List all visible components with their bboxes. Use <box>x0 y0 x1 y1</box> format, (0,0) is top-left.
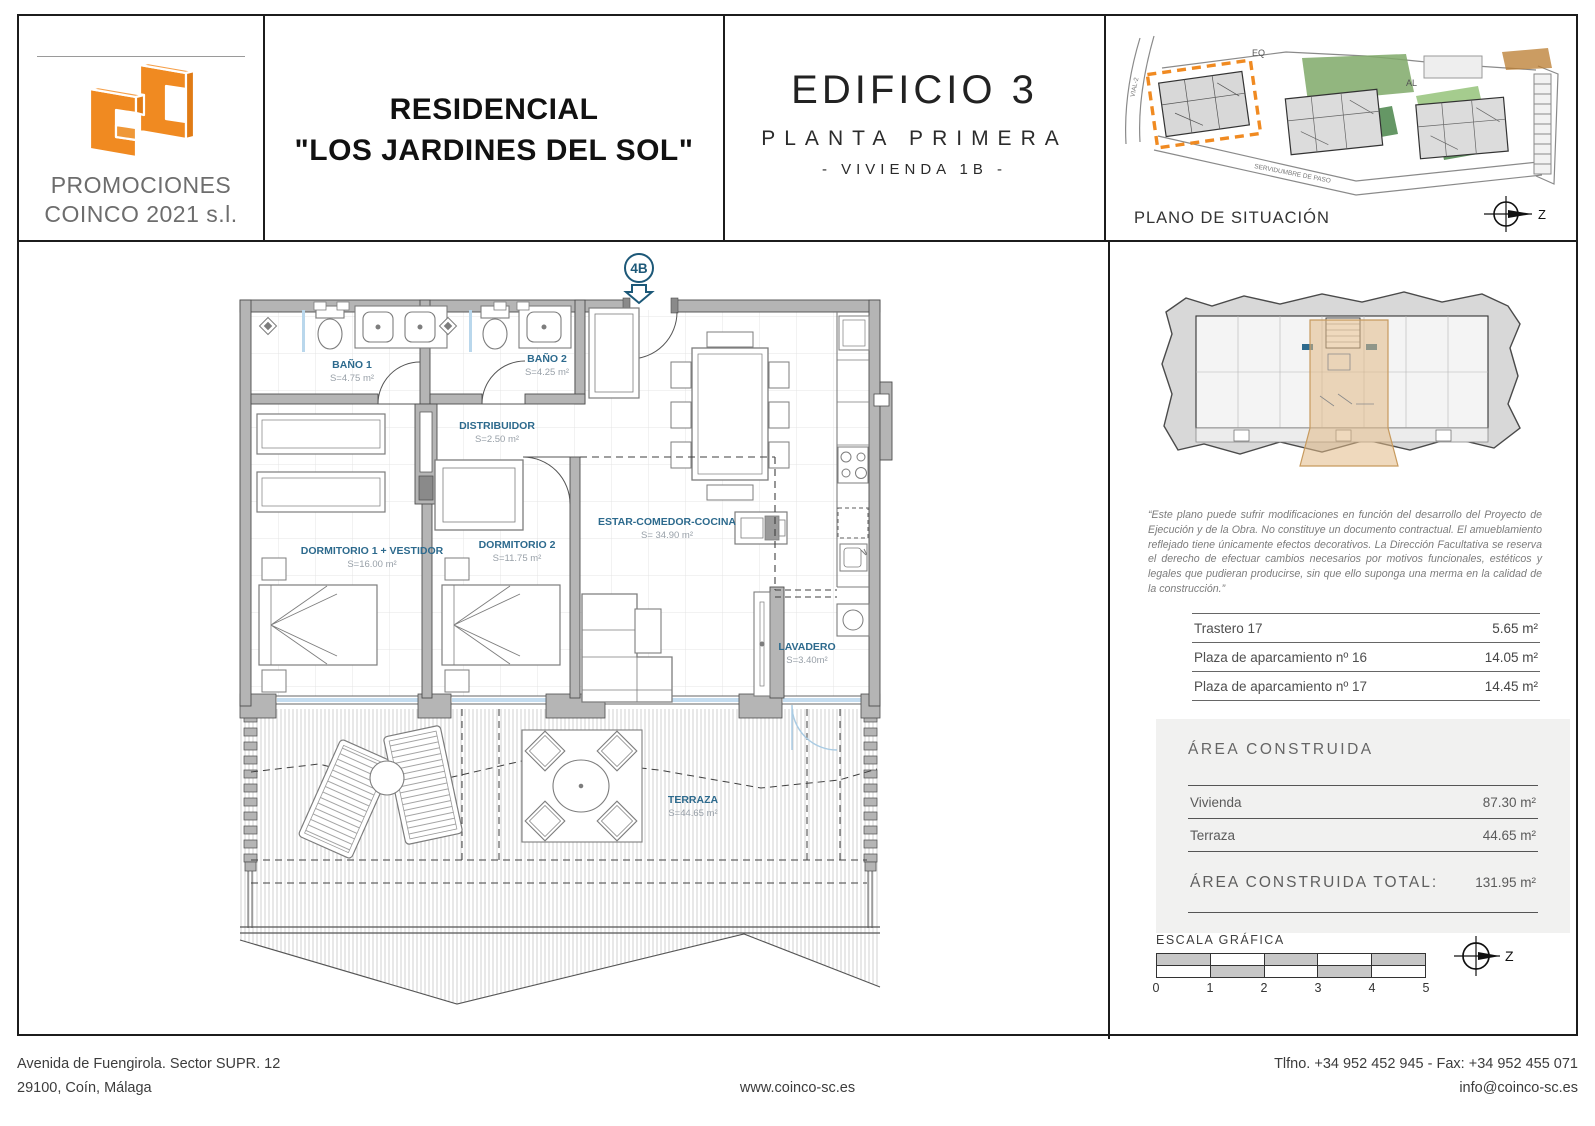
site-plan-caption: PLANO DE SITUACIÓN <box>1134 208 1330 227</box>
footer-phone: Tlfno. +34 952 452 945 - Fax: +34 952 45… <box>1058 1056 1578 1072</box>
room-label: DORMITORIO 2 <box>479 539 556 551</box>
side-table <box>370 761 404 795</box>
unit-name: - VIVIENDA 1B - <box>725 161 1104 178</box>
scale-label: ESCALA GRÁFICA <box>1156 933 1456 947</box>
room-area: S=3.40m² <box>786 655 827 666</box>
terrace-area <box>240 705 880 1004</box>
company-name: PROMOCIONES COINCO 2021 s.l. <box>44 171 237 229</box>
row-value: 5.65 m² <box>1492 621 1538 636</box>
entry-closet <box>589 308 639 398</box>
svg-text:Z: Z <box>1538 207 1546 222</box>
site-building-3 <box>1416 97 1508 158</box>
site-parking <box>1534 74 1551 174</box>
room-label: BAÑO 1 <box>332 358 372 371</box>
row-label: Trastero 17 <box>1194 621 1263 636</box>
row-value: 87.30 m² <box>1483 795 1536 810</box>
project-title-line2: "LOS JARDINES DEL SOL" <box>295 131 694 172</box>
dorm2-wardrobe <box>435 460 523 530</box>
company-name-line2: COINCO 2021 s.l. <box>44 200 237 229</box>
footer-address-line1: Avenida de Fuengirola. Sector SUPR. 12 <box>17 1056 537 1072</box>
room-label: ESTAR-COMEDOR-COCINA <box>598 516 736 528</box>
table-row: Trastero 17 5.65 m² <box>1192 613 1540 643</box>
site-building-2 <box>1285 89 1382 154</box>
table-row: Plaza de aparcamiento nº 16 14.05 m² <box>1192 643 1540 672</box>
total-label: ÁREA CONSTRUIDA TOTAL: <box>1190 874 1438 892</box>
footer-address-line2: 29100, Coín, Málaga <box>17 1080 537 1096</box>
row-value: 14.45 m² <box>1485 679 1538 694</box>
room-area: S=44.65 m² <box>668 808 717 819</box>
terrace-edge-right <box>864 714 877 862</box>
footer: Avenida de Fuengirola. Sector SUPR. 12 T… <box>17 1048 1578 1096</box>
room-label: TERRAZA <box>668 794 719 806</box>
company-block: PROMOCIONES COINCO 2021 s.l. <box>19 16 265 240</box>
unit-marker: 4B <box>625 254 653 303</box>
row-label: Plaza de aparcamiento nº 16 <box>1194 650 1367 665</box>
built-area-box: ÁREA CONSTRUIDA Vivienda 87.30 m² Terraz… <box>1156 719 1570 933</box>
room-area: S=4.75 m² <box>330 373 374 384</box>
storage-table: Trastero 17 5.65 m² Plaza de aparcamient… <box>1192 613 1540 701</box>
total-value: 131.95 m² <box>1475 875 1536 890</box>
floor-name: PLANTA PRIMERA <box>725 127 1104 151</box>
svg-text:Z: Z <box>1505 948 1514 964</box>
company-logo-icon <box>82 63 200 167</box>
site-label-eq: EQ <box>1252 48 1265 58</box>
disclaimer-text: “Este plano puede sufrir modificaciones … <box>1148 508 1542 597</box>
building-name: EDIFICIO 3 <box>725 68 1104 113</box>
site-plan-block: EQ AL VIAL-2 SERVIDUMBRE DE PASO PLANO D… <box>1106 16 1576 240</box>
table-row: Plaza de aparcamiento nº 17 14.45 m² <box>1192 672 1540 701</box>
key-plan-drawing <box>1152 276 1534 480</box>
right-window <box>874 394 889 406</box>
room-label: BAÑO 2 <box>527 352 567 365</box>
built-area-total-row: ÁREA CONSTRUIDA TOTAL: 131.95 m² <box>1188 852 1538 912</box>
room-area: S=11.75 m² <box>493 553 542 564</box>
floor-plan-panel: 4B <box>19 242 1110 1039</box>
keyplan-unit-highlight <box>1300 320 1398 466</box>
room-label: DORMITORIO 1 + VESTIDOR <box>301 545 444 557</box>
graphic-scale: ESCALA GRÁFICA 0 1 2 3 4 5 <box>1156 933 1456 997</box>
project-title-line1: RESIDENCIAL <box>390 90 599 131</box>
north-compass-icon: Z <box>1484 196 1546 232</box>
row-value: 44.65 m² <box>1483 828 1536 843</box>
sheet-frame: PROMOCIONES COINCO 2021 s.l. RESIDENCIAL… <box>17 14 1578 1036</box>
tv-unit <box>735 512 787 544</box>
footer-website: www.coinco-sc.es <box>537 1080 1058 1096</box>
scale-ticks: 0 1 2 3 4 5 <box>1156 981 1426 997</box>
coffee-table <box>635 609 661 653</box>
site-label-vial: VIAL-2 <box>1129 76 1140 97</box>
header: PROMOCIONES COINCO 2021 s.l. RESIDENCIAL… <box>19 16 1576 242</box>
room-label: LAVADERO <box>778 641 835 653</box>
table-row: Vivienda 87.30 m² <box>1188 786 1538 818</box>
info-sidebar: “Este plano puede sufrir modificaciones … <box>1110 242 1576 1039</box>
row-label: Plaza de aparcamiento nº 17 <box>1194 679 1367 694</box>
room-area: S=16.00 m² <box>347 559 396 570</box>
room-area: S= 34.90 m² <box>641 530 693 541</box>
logo-rule <box>37 56 245 57</box>
site-building-1-highlighted <box>1147 60 1260 148</box>
unit-identity-block: EDIFICIO 3 PLANTA PRIMERA - VIVIENDA 1B … <box>725 16 1106 240</box>
site-plan-drawing: EQ AL VIAL-2 SERVIDUMBRE DE PASO PLANO D… <box>1106 16 1570 238</box>
row-label: Terraza <box>1190 828 1235 843</box>
scale-bar <box>1156 953 1426 978</box>
main: 4B <box>19 242 1576 1039</box>
room-area: S=4.25 m² <box>525 367 569 378</box>
floor-plan-drawing: 4B <box>19 242 1110 1034</box>
north-compass-icon: Z <box>1446 930 1518 987</box>
room-label: DISTRIBUIDOR <box>459 420 535 432</box>
table-row: Terraza 44.65 m² <box>1188 819 1538 851</box>
row-label: Vivienda <box>1190 795 1242 810</box>
room-area: S=2.50 m² <box>475 434 519 445</box>
built-area-title: ÁREA CONSTRUIDA <box>1188 741 1538 759</box>
site-label-al: AL <box>1406 78 1417 88</box>
footer-email: info@coinco-sc.es <box>1058 1080 1578 1096</box>
unit-marker-label: 4B <box>630 261 648 276</box>
terrace-edge-left <box>244 714 257 862</box>
company-name-line1: PROMOCIONES <box>44 171 237 200</box>
project-title-block: RESIDENCIAL "LOS JARDINES DEL SOL" <box>265 16 725 240</box>
row-value: 14.05 m² <box>1485 650 1538 665</box>
terrace-dining-set <box>522 730 642 842</box>
plan-sheet: { "header": { "company_line1": "PROMOCIO… <box>0 0 1595 1126</box>
pocket-door <box>415 404 437 504</box>
